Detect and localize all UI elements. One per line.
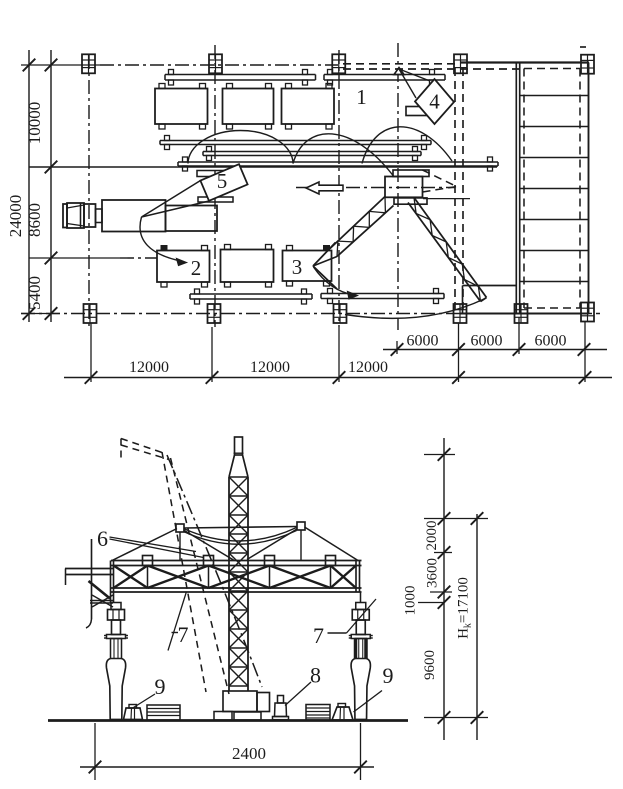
svg-text:3600: 3600 <box>425 558 441 588</box>
svg-text:6: 6 <box>97 526 108 551</box>
svg-text:8: 8 <box>310 663 321 688</box>
svg-text:12000: 12000 <box>348 359 388 376</box>
svg-text:12000: 12000 <box>129 359 169 376</box>
svg-text:1000: 1000 <box>403 586 419 616</box>
svg-text:7: 7 <box>313 623 324 648</box>
svg-text:6000: 6000 <box>407 333 439 350</box>
svg-text:7: 7 <box>178 622 189 647</box>
svg-text:10000: 10000 <box>25 102 44 145</box>
svg-text:5400: 5400 <box>25 276 44 310</box>
svg-text:2400: 2400 <box>232 744 266 763</box>
svg-text:2000: 2000 <box>424 521 440 551</box>
svg-text:4: 4 <box>429 90 440 114</box>
svg-text:12000: 12000 <box>250 359 290 376</box>
svg-text:6000: 6000 <box>535 333 567 350</box>
svg-text:1: 1 <box>356 85 367 109</box>
svg-text:9600: 9600 <box>422 650 438 680</box>
svg-text:8600: 8600 <box>25 203 44 237</box>
svg-text:3: 3 <box>292 255 303 279</box>
svg-text:6000: 6000 <box>471 333 503 350</box>
svg-text:24000: 24000 <box>6 195 25 238</box>
svg-text:9: 9 <box>155 674 166 699</box>
svg-text:5: 5 <box>217 169 228 193</box>
svg-text:Hk=17100: Hk=17100 <box>456 577 474 639</box>
svg-text:9: 9 <box>383 663 394 688</box>
svg-text:2: 2 <box>191 256 202 280</box>
